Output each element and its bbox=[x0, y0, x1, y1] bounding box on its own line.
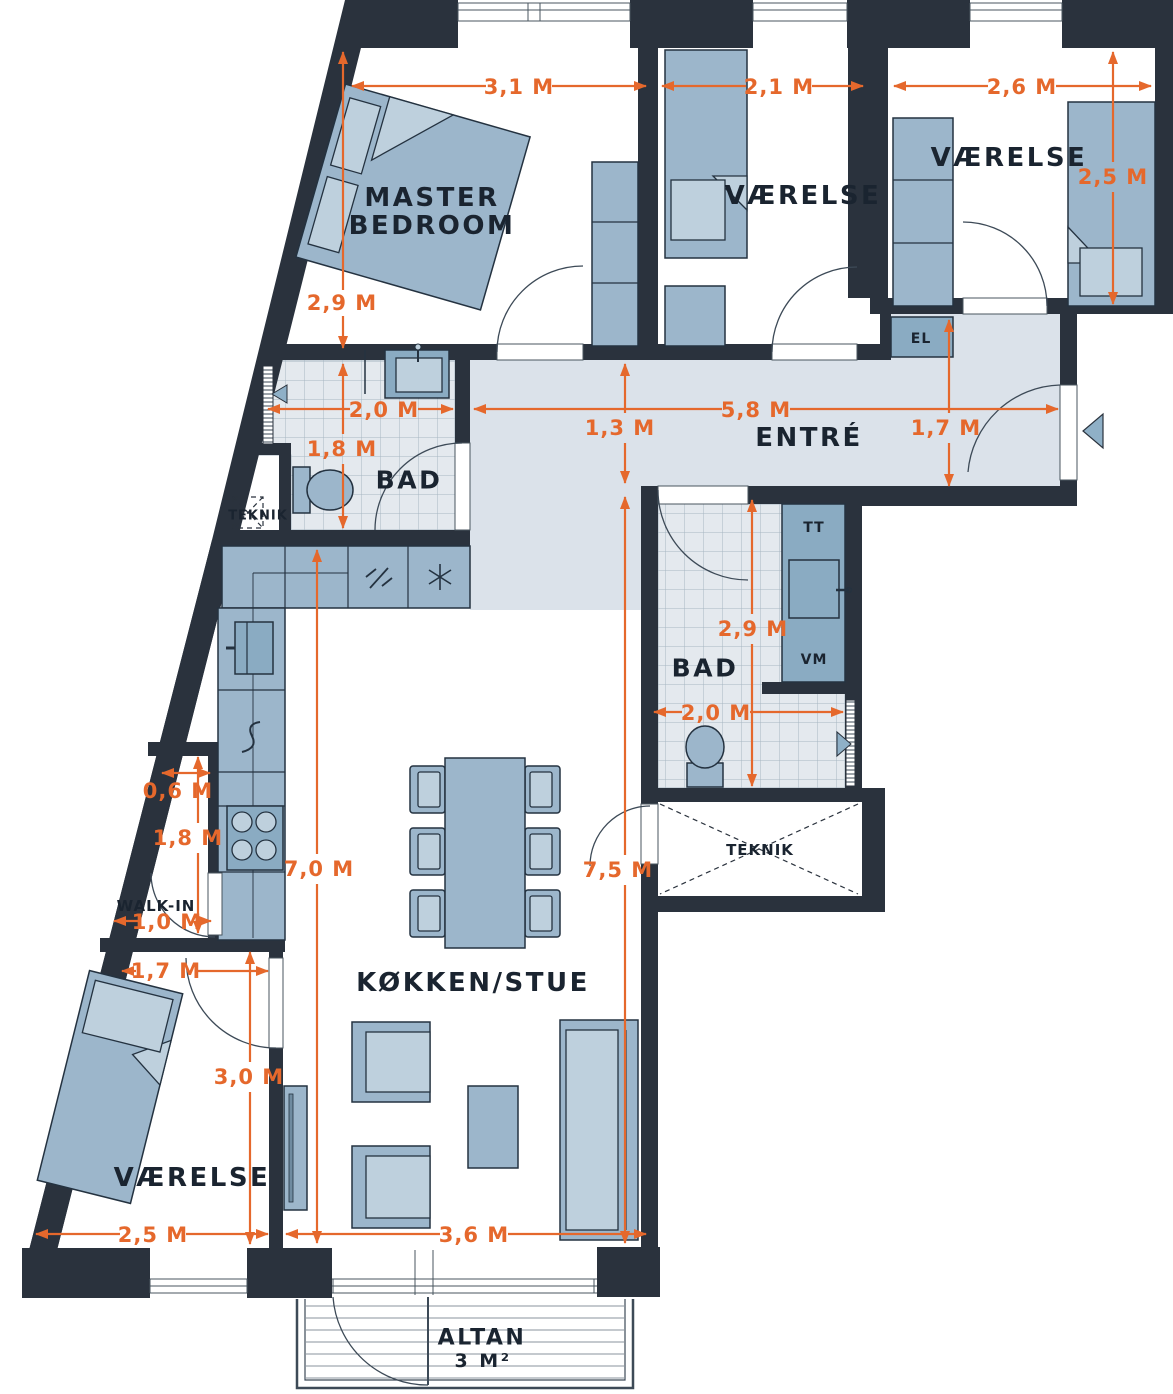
room-label-bedroom-right: VÆRELSE bbox=[931, 143, 1088, 173]
svg-text:2,9 M: 2,9 M bbox=[307, 291, 377, 315]
svg-text:5,8 M: 5,8 M bbox=[721, 398, 791, 422]
svg-text:1,7 M: 1,7 M bbox=[131, 959, 201, 983]
sofa bbox=[560, 1020, 638, 1240]
dining-table bbox=[445, 758, 525, 948]
svg-text:1,7 M: 1,7 M bbox=[911, 416, 981, 440]
single-bed-top bbox=[665, 50, 747, 258]
dim-bedroom-bottom-width: 2,5 M bbox=[36, 1223, 268, 1247]
svg-text:3,0 M: 3,0 M bbox=[214, 1065, 284, 1089]
coffee-table bbox=[468, 1086, 518, 1168]
room-label-entry: ENTRÉ bbox=[755, 421, 863, 453]
room-label-bath-left: BAD bbox=[376, 466, 443, 495]
room-label-balcony-area: 3 M² bbox=[454, 1350, 511, 1372]
single-bed-right bbox=[1068, 102, 1155, 306]
dim-bedroom-bottom-door: 1,7 M bbox=[122, 959, 268, 983]
window-bedroom-bottom bbox=[150, 1248, 247, 1298]
svg-text:2,6 M: 2,6 M bbox=[987, 75, 1057, 99]
svg-text:3,6 M: 3,6 M bbox=[439, 1223, 509, 1247]
room-label-walkin: WALK-IN bbox=[117, 897, 196, 915]
dresser-top-bedroom bbox=[665, 286, 725, 346]
label-vm: VM bbox=[801, 652, 828, 668]
room-label-bedroom-top: VÆRELSE bbox=[725, 181, 882, 211]
room-label-bedroom-bottom: VÆRELSE bbox=[114, 1163, 271, 1193]
svg-text:7,5 M: 7,5 M bbox=[583, 858, 653, 882]
room-label-teknik-right: TEKNIK bbox=[726, 841, 794, 859]
svg-text:1,8 M: 1,8 M bbox=[153, 826, 223, 850]
svg-text:7,0 M: 7,0 M bbox=[284, 857, 354, 881]
dim-master-width: 3,1 M bbox=[352, 75, 646, 99]
door-master bbox=[497, 266, 583, 360]
svg-text:2,5 M: 2,5 M bbox=[118, 1223, 188, 1247]
svg-text:2,0 M: 2,0 M bbox=[681, 701, 751, 725]
svg-text:2,9 M: 2,9 M bbox=[718, 617, 788, 641]
svg-text:1,3 M: 1,3 M bbox=[585, 416, 655, 440]
wardrobe-master bbox=[592, 162, 638, 346]
floor-plan: 3,1 M 2,9 M 2,1 M 2,6 M 2,5 M 2,0 M 1,8 … bbox=[0, 0, 1173, 1394]
svg-text:0,6 M: 0,6 M bbox=[143, 779, 213, 803]
window-balcony-band bbox=[332, 1247, 597, 1297]
armchair bbox=[352, 1146, 430, 1228]
entrance-arrow-icon bbox=[1083, 414, 1103, 448]
room-label-bath-right: BAD bbox=[672, 654, 739, 683]
room-label-balcony: ALTAN bbox=[438, 1326, 527, 1351]
toilet-icon-right bbox=[686, 726, 724, 787]
stove-icon bbox=[227, 806, 283, 870]
svg-text:2,5 M: 2,5 M bbox=[1078, 165, 1148, 189]
window-bedroom-top bbox=[753, 0, 847, 46]
radiator-icon-left bbox=[263, 366, 273, 444]
window-master bbox=[458, 0, 630, 46]
sink-icon bbox=[385, 344, 449, 398]
svg-text:2,0 M: 2,0 M bbox=[349, 398, 419, 422]
armchair bbox=[352, 1022, 430, 1102]
room-label-teknik-left: TEKNIK bbox=[228, 509, 288, 524]
label-tt: TT bbox=[803, 520, 824, 536]
room-label-kitchen-living: KØKKEN/STUE bbox=[356, 968, 590, 998]
dining-set bbox=[410, 758, 560, 948]
svg-text:3,1 M: 3,1 M bbox=[484, 75, 554, 99]
svg-text:2,1 M: 2,1 M bbox=[744, 75, 814, 99]
floor-plan-svg: 3,1 M 2,9 M 2,1 M 2,6 M 2,5 M 2,0 M 1,8 … bbox=[0, 0, 1173, 1394]
door-bedroom-top bbox=[772, 267, 857, 360]
room-label-master-line1: MASTER bbox=[364, 183, 499, 213]
window-bedroom-right bbox=[970, 0, 1062, 46]
tall-cabinet bbox=[284, 1086, 307, 1210]
label-el: EL bbox=[911, 331, 931, 347]
svg-text:1,8 M: 1,8 M bbox=[307, 437, 377, 461]
door-bedroom-right bbox=[963, 222, 1047, 314]
room-label-master-line2: BEDROOM bbox=[349, 211, 516, 241]
